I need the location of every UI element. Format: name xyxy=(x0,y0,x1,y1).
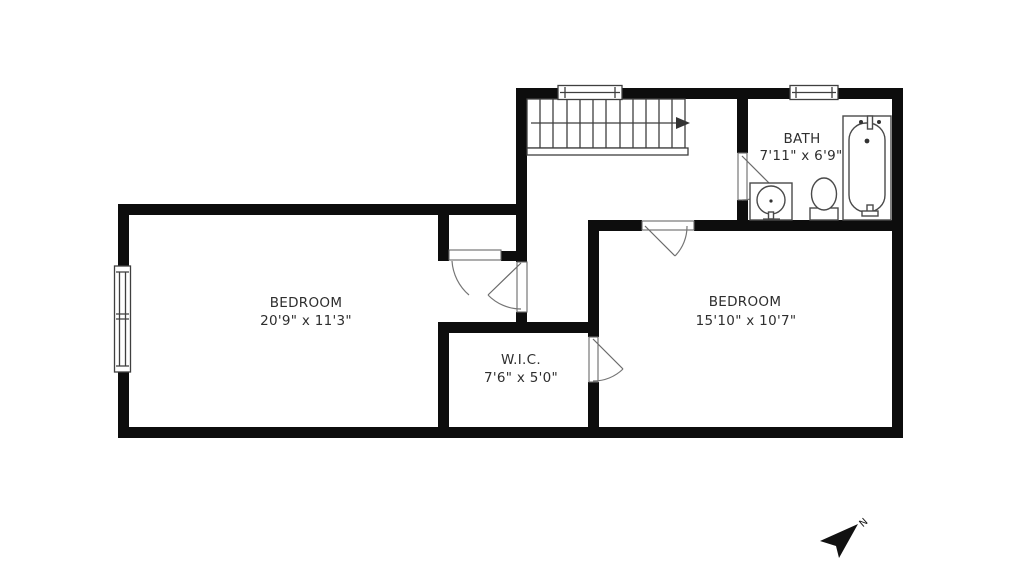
wall-segment xyxy=(501,251,516,261)
sink-vanity xyxy=(750,183,792,220)
wall-segment xyxy=(118,427,903,438)
wall-segment xyxy=(622,88,790,99)
wall-segment xyxy=(438,322,599,333)
floor-plan-svg: BEDROOM 20'9" x 11'3" BEDROOM 15'10" x 1… xyxy=(0,0,1024,576)
bedroom-right-dimensions: 15'10" x 10'7" xyxy=(696,313,797,329)
sink-drain xyxy=(769,199,772,202)
floor-plan-canvas: BEDROOM 20'9" x 11'3" BEDROOM 15'10" x 1… xyxy=(0,0,1024,576)
stair-landing-edge xyxy=(527,148,688,155)
wall-segment xyxy=(118,372,129,438)
window-top-bath xyxy=(790,86,838,100)
bedroom-left-label: BEDROOM xyxy=(270,295,343,311)
wall-segment xyxy=(737,99,748,153)
door-left-bedroom xyxy=(488,262,527,312)
wall-segment xyxy=(438,333,449,427)
wall-segment xyxy=(588,231,599,337)
tub-handle-right xyxy=(877,120,881,124)
wall-segment xyxy=(516,99,527,262)
bath-dimensions: 7'11" x 6'9" xyxy=(760,148,843,164)
wall-segment xyxy=(892,88,903,438)
tub-faucet-icon xyxy=(868,116,873,129)
door-swing-arc xyxy=(452,261,469,295)
wic-dimensions: 7'6" x 5'0" xyxy=(484,370,558,386)
window-double-left xyxy=(115,266,131,372)
door-leaf xyxy=(589,337,598,382)
wall-segment xyxy=(737,220,903,231)
tub-overflow-base xyxy=(862,211,878,216)
north-label: N xyxy=(858,517,871,530)
door-leaf xyxy=(517,262,527,312)
toilet xyxy=(810,178,838,220)
door-leaf xyxy=(449,250,501,260)
bathtub xyxy=(843,116,891,220)
bedroom-left-dimensions: 20'9" x 11'3" xyxy=(260,313,352,329)
tub-drain xyxy=(865,139,870,144)
window-top-stairs xyxy=(558,86,622,100)
compass: N xyxy=(820,517,870,558)
tub-basin xyxy=(849,123,885,212)
door-leaf-line xyxy=(488,263,521,295)
tub-handle-left xyxy=(859,120,863,124)
door-wic xyxy=(589,337,623,382)
door-closet-alcove xyxy=(449,250,501,295)
door-leaf xyxy=(642,221,694,230)
wic-label: W.I.C. xyxy=(501,352,541,368)
wall-segment xyxy=(588,220,642,231)
wall-segment xyxy=(588,382,599,427)
wall-segment xyxy=(438,215,449,261)
door-swing-arc xyxy=(488,295,521,309)
sink-faucet-icon xyxy=(769,212,774,219)
bath-label: BATH xyxy=(783,131,820,147)
wall-segment xyxy=(737,200,748,221)
wall-segment xyxy=(118,204,527,215)
north-arrow-icon xyxy=(820,524,858,558)
staircase xyxy=(527,99,690,155)
toilet-bowl xyxy=(812,178,837,210)
door-right-bedroom-entry xyxy=(642,221,694,256)
bedroom-right-label: BEDROOM xyxy=(709,294,782,310)
wall-segment xyxy=(516,88,558,99)
